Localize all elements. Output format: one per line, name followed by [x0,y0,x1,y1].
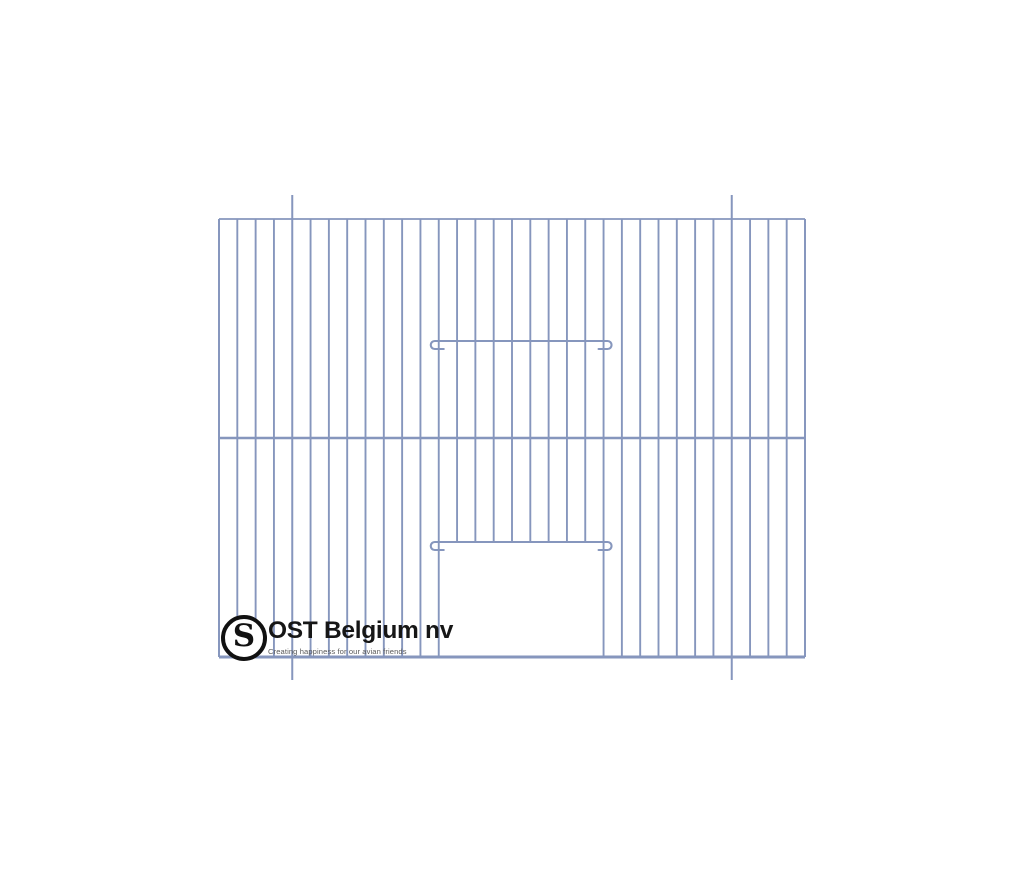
hook-rod-left-curl [431,341,444,349]
logo-words: OST Belgium nv Creating happiness for ou… [268,615,453,656]
logo-monogram-letter: S [233,621,255,652]
product-drawing-page: S OST Belgium nv Creating happiness for … [0,0,1024,878]
hook-rod-left-curl [431,542,444,550]
cage-front-drawing [0,0,1024,878]
brand-logo: S OST Belgium nv Creating happiness for … [221,615,453,661]
logo-monogram-ring-icon: S [221,615,267,661]
hook-rod-right-curl [599,542,612,550]
company-name: OST Belgium nv [268,619,453,644]
hook-rod-right-curl [599,341,612,349]
company-tagline: Creating happiness for our avian friends [268,647,453,656]
